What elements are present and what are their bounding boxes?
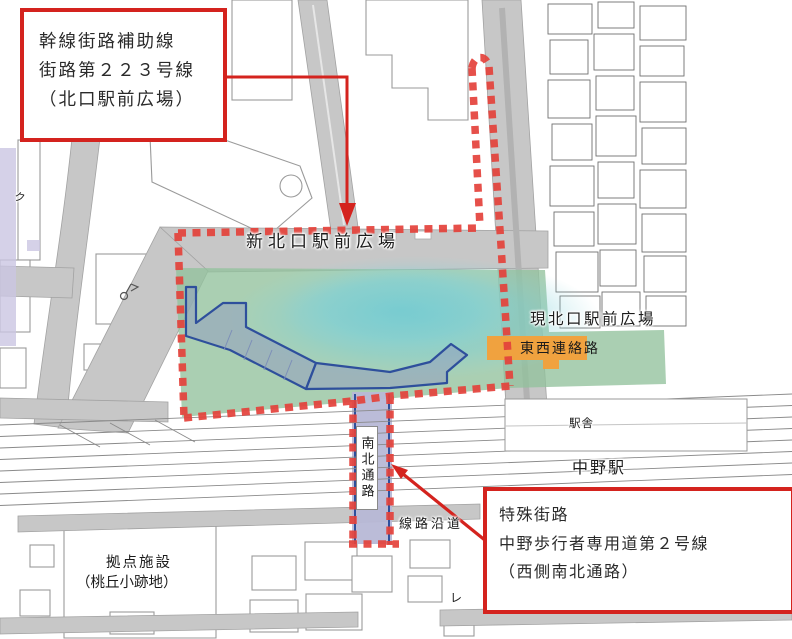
callout-pedestrian-road: 特殊街路 中野歩行者専用道第２号線 （西側南北通路） (483, 487, 792, 614)
label-namboku-tsuro: 南北通路 (358, 436, 377, 500)
callout-north-plaza-line3: （北口駅前広場） (39, 85, 223, 114)
callout-pedestrian-line3: （西側南北通路） (499, 559, 791, 588)
label-tozai-renrakuro: 東西連絡路 (520, 340, 600, 356)
callout-north-plaza-line2: 街路第２２３号線 (39, 56, 223, 85)
label-gen-kitaguchi-plaza: 現北口駅前広場 (530, 311, 656, 329)
label-senro-endo: 線路沿道 (399, 517, 463, 532)
map-canvas: 新北口駅前広場 現北口駅前広場 東西連絡路 南北通路 駅舎 中野駅 線路沿道 拠… (0, 0, 792, 639)
label-ekisha: 駅舎 (569, 418, 594, 431)
label-partial-bottom-char: レ (450, 592, 462, 606)
callout-pedestrian-line1: 特殊街路 (499, 502, 791, 531)
cyan-highlight-core (280, 265, 520, 355)
small-lavender-block (27, 240, 40, 251)
label-namboku-tsuro-box: 南北通路 (356, 426, 378, 510)
label-nakano-station: 中野駅 (572, 460, 626, 478)
left-lavender-strip (0, 148, 16, 346)
callout-north-plaza: 幹線街路補助線 街路第２２３号線 （北口駅前広場） (20, 8, 227, 142)
label-shin-kitaguchi-plaza: 新北口駅前広場 (246, 232, 400, 252)
callout-pedestrian-line2: 中野歩行者専用道第２号線 (499, 531, 791, 560)
label-kyoten-shisetsu-line1: 拠点施設 (106, 555, 172, 572)
callout-north-plaza-line1: 幹線街路補助線 (39, 27, 223, 56)
label-kyoten-shisetsu-line2: （桃丘小跡地） (76, 575, 178, 592)
parcel-grid (548, 2, 686, 328)
